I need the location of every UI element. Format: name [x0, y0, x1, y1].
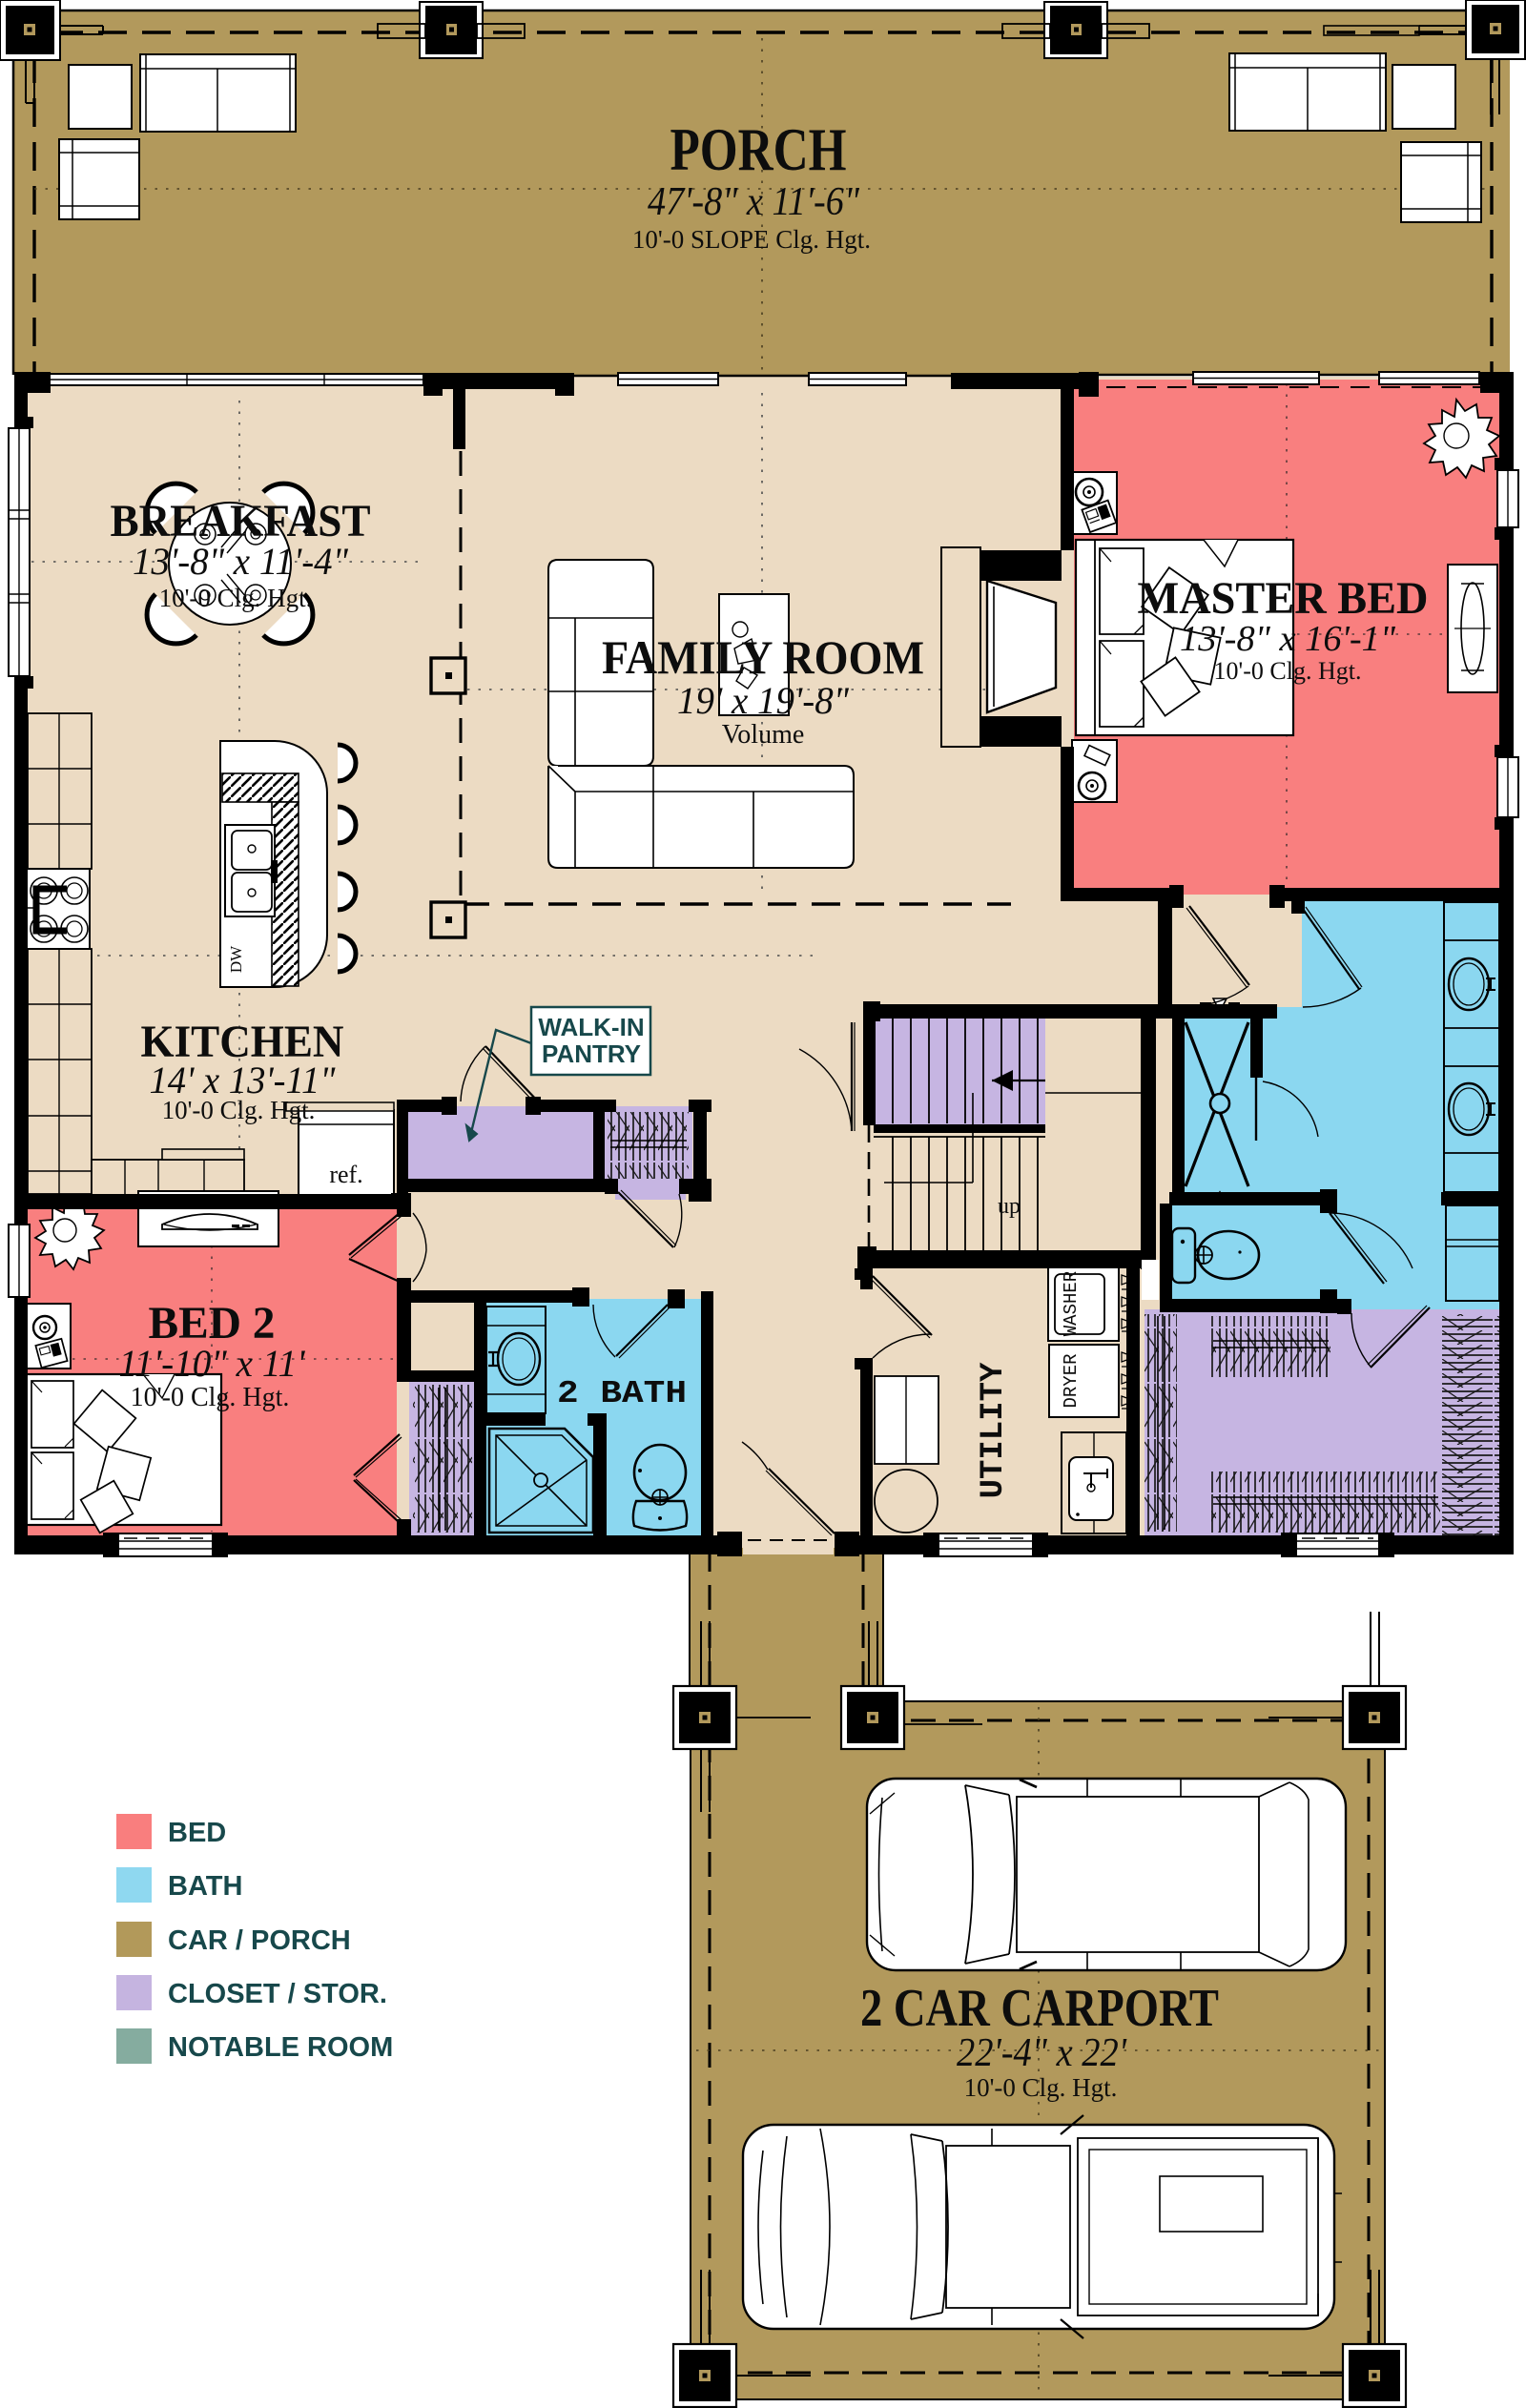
svg-text:NOTABLE ROOM: NOTABLE ROOM [168, 2032, 393, 2063]
svg-text:2 BATH: 2 BATH [557, 1376, 687, 1411]
svg-text:10'-0 Clg. Hgt.: 10'-0 Clg. Hgt. [964, 2073, 1118, 2102]
svg-text:DRYER: DRYER [1061, 1353, 1082, 1408]
svg-text:2 CAR CARPORT: 2 CAR CARPORT [860, 1979, 1219, 2038]
svg-text:13'-8" x 11'-4": 13'-8" x 11'-4" [133, 540, 348, 583]
svg-text:UTILITY: UTILITY [976, 1362, 1012, 1498]
svg-text:PANTRY: PANTRY [542, 1039, 641, 1068]
svg-text:WASHER: WASHER [1061, 1271, 1082, 1336]
svg-text:WALK-IN: WALK-IN [538, 1013, 644, 1041]
svg-text:10'-0 Clg. Hgt.: 10'-0 Clg. Hgt. [162, 1096, 316, 1124]
svg-text:DW: DW [227, 945, 245, 973]
svg-text:13'-8" x 16'-1": 13'-8" x 16'-1" [1180, 619, 1396, 659]
svg-text:up: up [998, 1194, 1021, 1219]
svg-text:11'-10" x 11': 11'-10" x 11' [119, 1342, 306, 1385]
svg-text:Volume: Volume [722, 720, 805, 750]
svg-text:CAR / PORCH: CAR / PORCH [168, 1925, 351, 1956]
svg-text:19' x 19'-8": 19' x 19'-8" [677, 679, 849, 722]
svg-text:10'-0 SLOPE Clg. Hgt.: 10'-0 SLOPE Clg. Hgt. [632, 225, 871, 254]
svg-text:BED: BED [168, 1818, 226, 1848]
svg-text:BATH: BATH [168, 1871, 242, 1902]
svg-text:CLOSET / STOR.: CLOSET / STOR. [168, 1979, 387, 2009]
svg-text:PORCH: PORCH [670, 116, 847, 183]
svg-text:22'-4" x 22': 22'-4" x 22' [957, 2031, 1127, 2075]
svg-text:10'-0 Clg. Hgt.: 10'-0 Clg. Hgt. [131, 1383, 290, 1412]
svg-text:MASTER BED: MASTER BED [1138, 573, 1429, 624]
svg-text:47'-8" x 11'-6": 47'-8" x 11'-6" [648, 180, 859, 224]
svg-text:ref.: ref. [329, 1161, 362, 1188]
svg-text:FAMILY ROOM: FAMILY ROOM [602, 630, 924, 684]
svg-text:10'-0 Clg. Hgt.: 10'-0 Clg. Hgt. [1214, 657, 1362, 685]
svg-text:10'-0 Clg. Hgt.: 10'-0 Clg. Hgt. [159, 584, 313, 612]
